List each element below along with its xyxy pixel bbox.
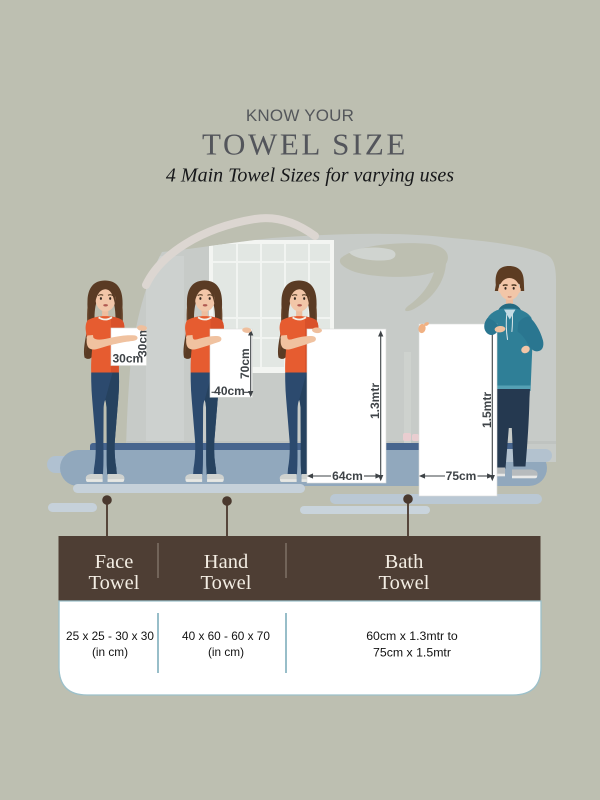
svg-text:1.3mtr: 1.3mtr <box>368 383 382 419</box>
svg-text:4 Main Towel Sizes for varying: 4 Main Towel Sizes for varying uses <box>166 165 454 187</box>
svg-text:75cm: 75cm <box>446 469 477 483</box>
svg-text:25 x 25 - 30 x 30: 25 x 25 - 30 x 30 <box>66 629 154 643</box>
svg-text:Towel: Towel <box>201 572 252 594</box>
svg-text:Towel: Towel <box>89 572 140 594</box>
svg-text:30cm: 30cm <box>135 326 149 357</box>
svg-text:Face: Face <box>95 551 134 573</box>
svg-text:40 x 60 - 60 x 70: 40 x 60 - 60 x 70 <box>182 629 270 643</box>
svg-text:1.5mtr: 1.5mtr <box>480 392 494 428</box>
svg-text:Bath: Bath <box>385 551 424 573</box>
svg-text:TOWEL SIZE: TOWEL SIZE <box>202 127 408 162</box>
svg-text:40cm: 40cm <box>214 384 245 398</box>
svg-text:Hand: Hand <box>204 551 248 573</box>
svg-text:(in cm): (in cm) <box>92 645 128 659</box>
svg-text:60cm x 1.3mtr to: 60cm x 1.3mtr to <box>366 629 458 643</box>
svg-text:70cm: 70cm <box>238 348 252 379</box>
svg-text:KNOW YOUR: KNOW YOUR <box>246 106 354 125</box>
svg-text:(in cm): (in cm) <box>208 645 244 659</box>
svg-text:Towel: Towel <box>379 572 430 594</box>
svg-text:75cm x 1.5mtr: 75cm x 1.5mtr <box>373 646 451 660</box>
svg-text:64cm: 64cm <box>332 469 363 483</box>
